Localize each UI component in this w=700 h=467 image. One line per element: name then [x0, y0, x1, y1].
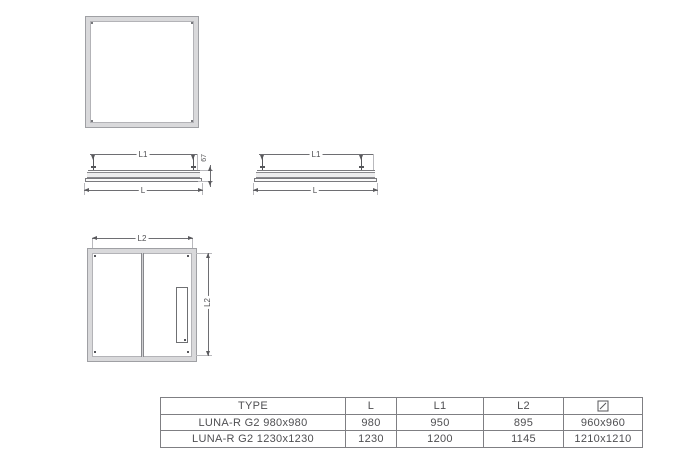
dimension-label-l: L — [139, 186, 147, 195]
extension-line — [197, 154, 198, 170]
corner-screw-icon — [91, 22, 93, 24]
arrow-right-icon — [373, 188, 378, 192]
arrow-down-icon — [208, 181, 212, 186]
table-row-l1: 950 — [397, 415, 484, 431]
arrow-down-icon — [206, 351, 210, 356]
suspension-screw-icon — [93, 157, 94, 171]
corner-screw-icon — [187, 351, 189, 353]
extension-line — [92, 239, 93, 249]
arrow-left-icon — [84, 188, 89, 192]
table-row-cutout: 960x960 — [564, 415, 643, 431]
corner-screw-icon — [94, 351, 96, 353]
dimension-label-l2-right: L2 — [203, 296, 212, 309]
table-row-type: LUNA-R G2 1230x1230 — [161, 431, 346, 448]
table-header-l: L — [346, 398, 397, 415]
extension-line — [192, 239, 193, 249]
table-header-l2: L2 — [484, 398, 564, 415]
suspension-screw-head-icon — [191, 166, 196, 168]
suspension-screw-icon — [262, 157, 263, 171]
driver-box — [176, 287, 188, 343]
dimension-label-height: 67 — [200, 152, 209, 164]
table-row-l2: 1145 — [484, 431, 564, 448]
table-row-l: 980 — [346, 415, 397, 431]
technical-drawing-sheet: L1 L 67 L1 — [0, 0, 700, 467]
dimension-label-l2: L2 — [136, 234, 149, 243]
table-row-l2: 895 — [484, 415, 564, 431]
center-divider — [141, 253, 144, 357]
suspension-screw-head-icon — [359, 166, 364, 168]
driver-cable-dot-icon — [184, 339, 186, 341]
table-row-type: LUNA-R G2 980x980 — [161, 415, 346, 431]
corner-screw-icon — [191, 22, 193, 24]
arrow-up-icon — [208, 166, 212, 171]
dimension-label-l1: L1 — [137, 150, 150, 159]
arrow-right-icon — [198, 188, 203, 192]
panel-flange — [254, 178, 377, 182]
panel-top-line — [257, 170, 375, 171]
panel-top-line — [88, 170, 200, 171]
profile-view-left: L1 L 67 — [83, 145, 215, 197]
table-row-cutout: 1210x1210 — [564, 431, 643, 448]
spec-table: TYPE L L1 L2 LUNA-R G2 980x980 980 950 8… — [160, 397, 643, 448]
table-header-l1: L1 — [397, 398, 484, 415]
corner-screw-icon — [91, 120, 93, 122]
extension-line — [373, 154, 374, 170]
suspension-screw-head-icon — [260, 166, 265, 168]
panel-flange — [85, 178, 202, 182]
corner-screw-icon — [187, 255, 189, 257]
back-view: L2 L2 — [85, 230, 217, 365]
front-view-frame — [86, 17, 198, 127]
suspension-screw-icon — [193, 157, 194, 171]
profile-view-right: L1 L — [253, 145, 383, 197]
dimension-label-l: L — [311, 186, 319, 195]
corner-screw-icon — [191, 120, 193, 122]
table-header-cutout — [564, 398, 643, 415]
front-view — [86, 17, 198, 127]
suspension-screw-head-icon — [91, 166, 96, 168]
arrow-left-icon — [253, 188, 258, 192]
suspension-screw-icon — [361, 157, 362, 171]
cutout-icon — [597, 400, 609, 412]
table-row-l1: 1200 — [397, 431, 484, 448]
table-row-l: 1230 — [346, 431, 397, 448]
corner-screw-icon — [94, 255, 96, 257]
table-header-type: TYPE — [161, 398, 346, 415]
arrow-up-icon — [206, 253, 210, 258]
dimension-label-l1: L1 — [310, 150, 323, 159]
